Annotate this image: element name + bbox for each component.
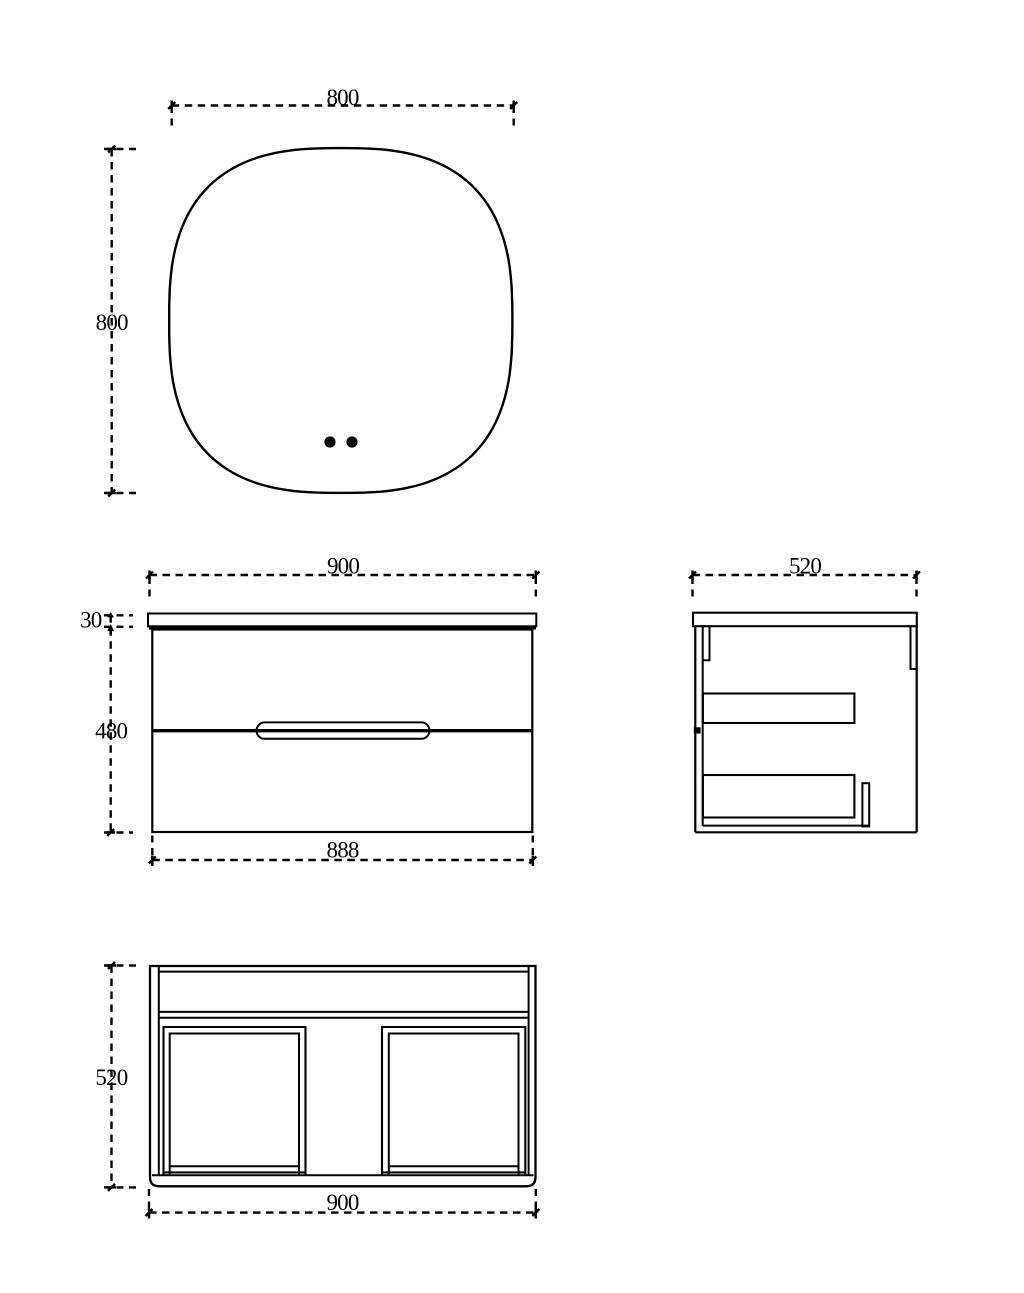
svg-text:520: 520	[95, 1065, 127, 1090]
svg-text:900: 900	[326, 1190, 358, 1215]
svg-text:888: 888	[327, 838, 359, 863]
svg-text:480: 480	[95, 719, 127, 744]
svg-text:520: 520	[789, 554, 821, 579]
svg-text:900: 900	[327, 554, 359, 579]
svg-text:30: 30	[80, 608, 102, 633]
svg-text:800: 800	[96, 310, 128, 335]
svg-text:800: 800	[326, 85, 358, 110]
